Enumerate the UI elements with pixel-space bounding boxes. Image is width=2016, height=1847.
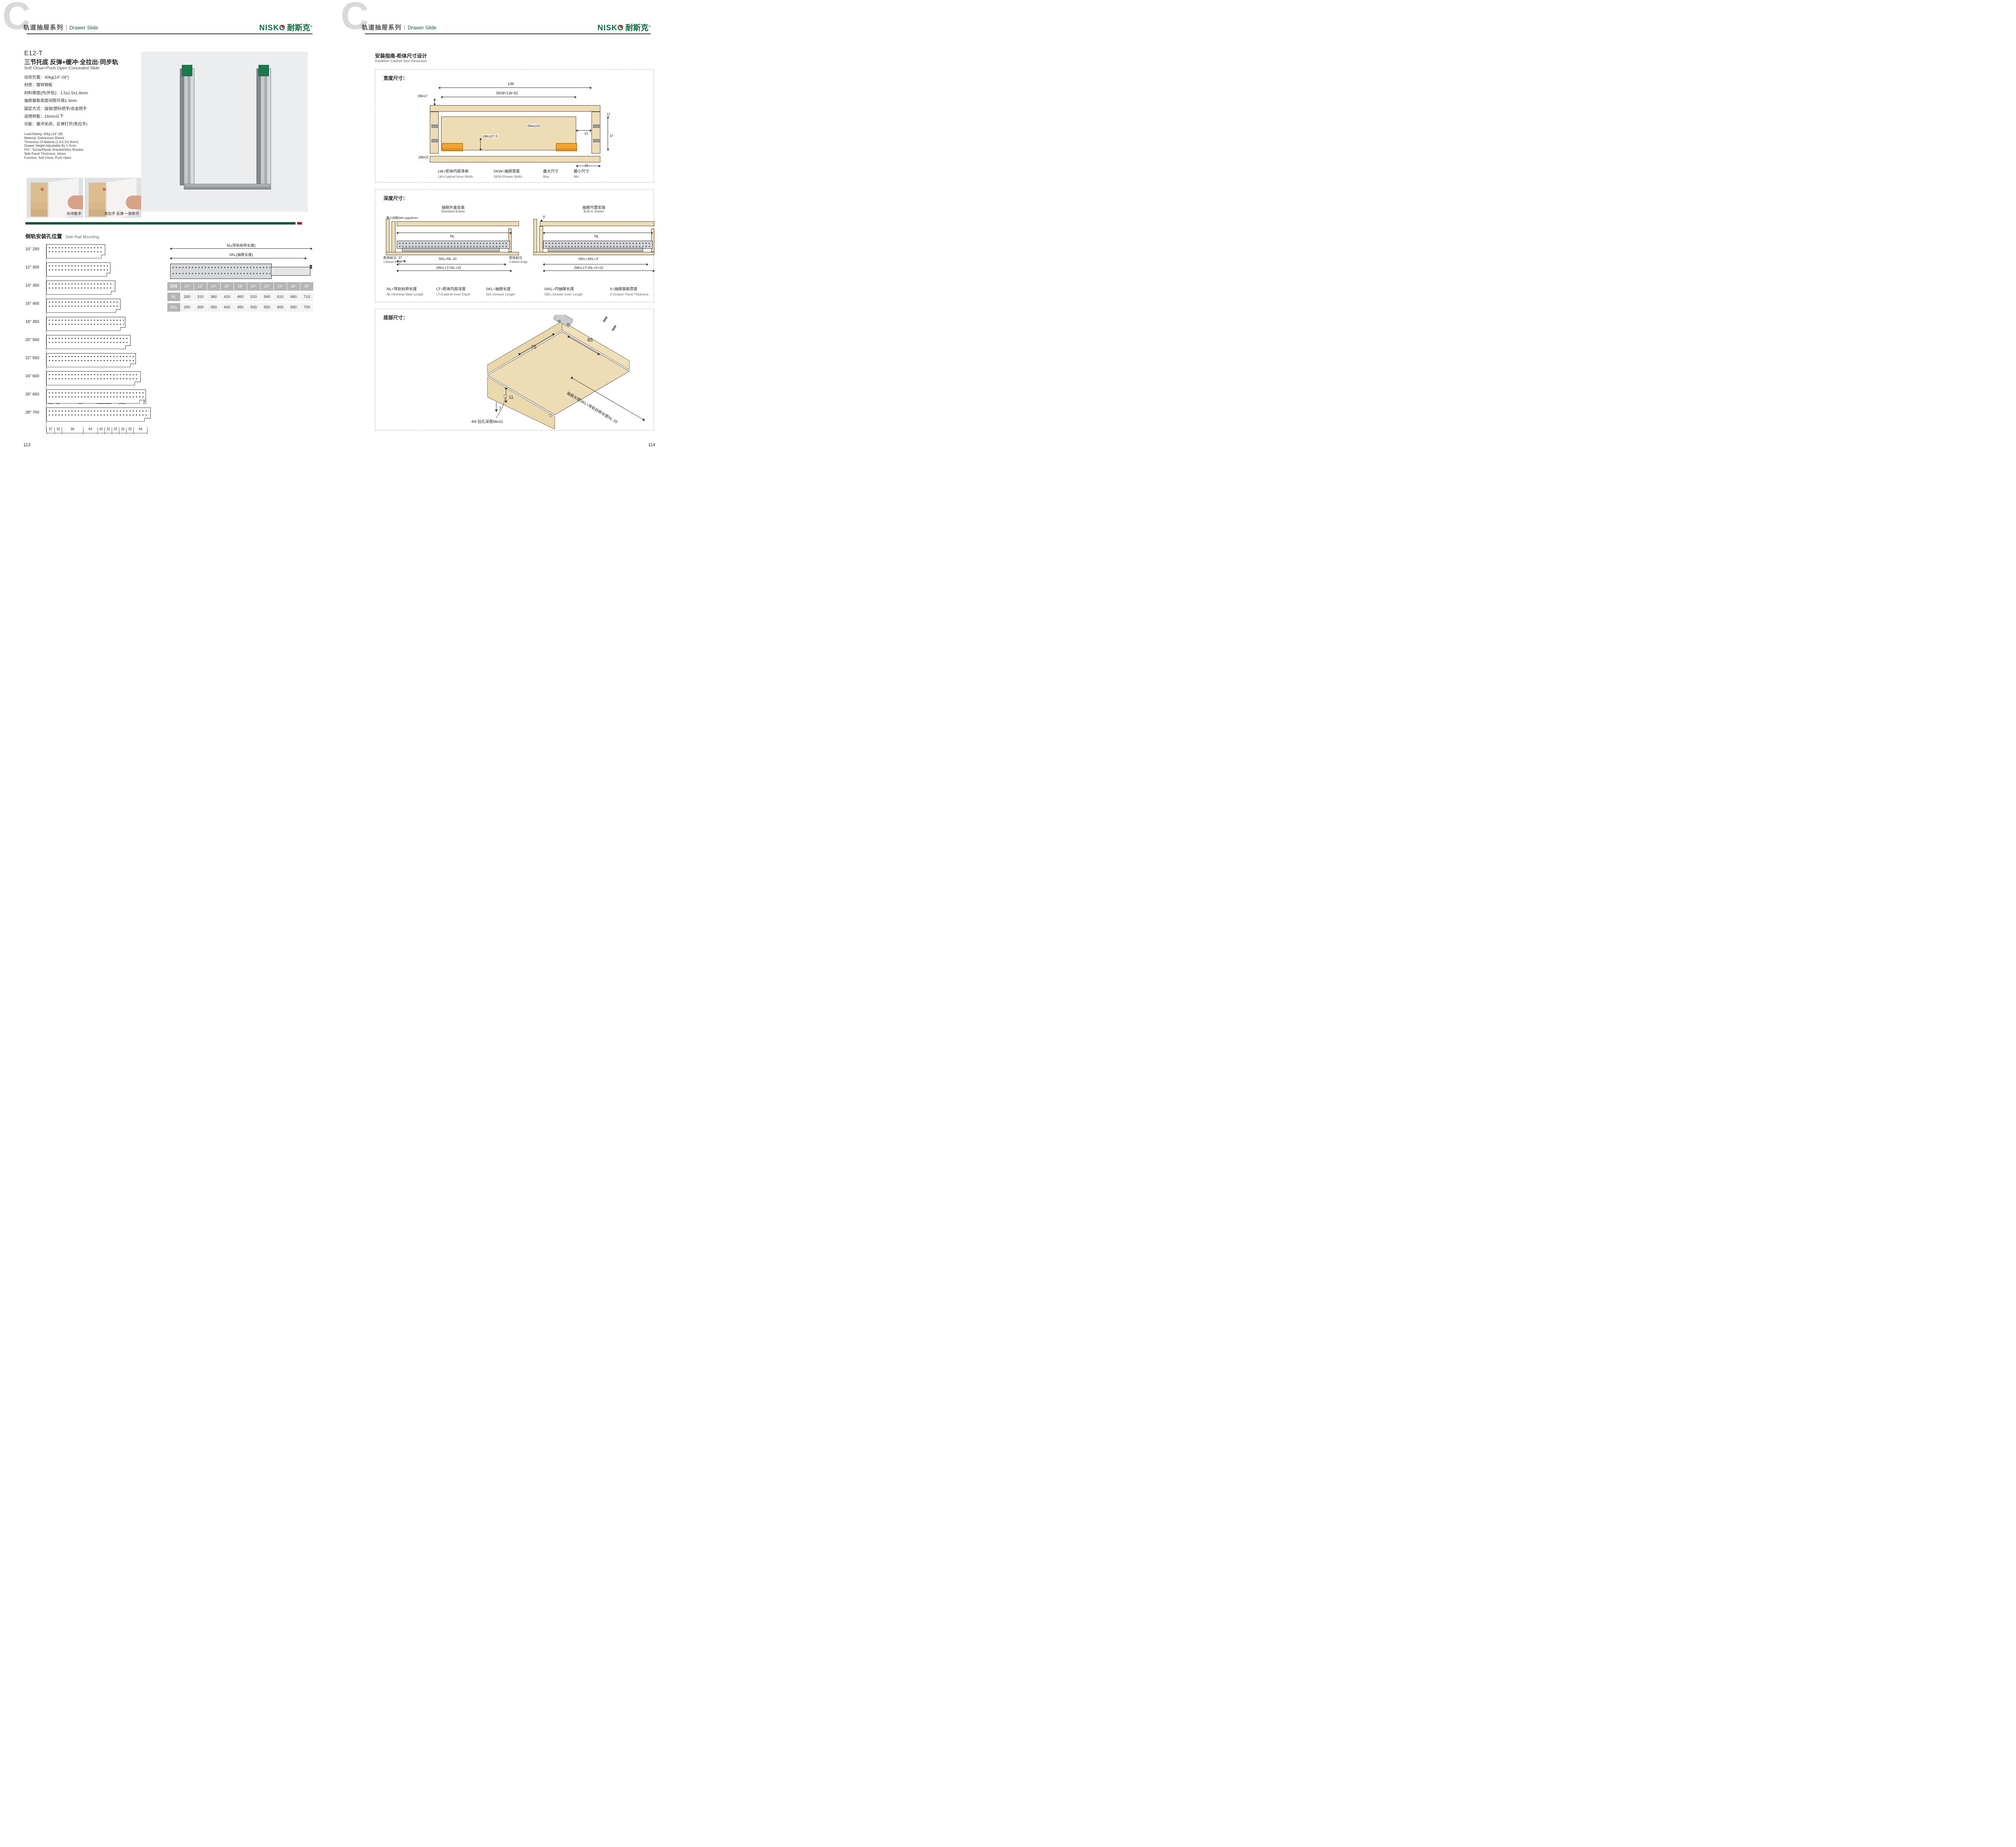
width-diagram: LW SKW=LW-42 (Min)7 (Max)16 (Min)27.5 [387, 82, 643, 169]
nl-arrow [397, 233, 512, 233]
hand-image [126, 196, 141, 209]
table-value-cell: 610 [274, 293, 287, 301]
legend-zh: ISKL=内抽屉长度 [544, 286, 583, 291]
screw-icon [603, 316, 616, 331]
rail-row: 28" 700 [25, 405, 314, 423]
cabinet-top-board [430, 105, 600, 112]
cabinet-side-panel [533, 219, 537, 254]
dim-11-label: 11 [509, 395, 513, 400]
hole-row [48, 377, 139, 380]
slide-rail-image [543, 241, 653, 249]
hole-row [48, 323, 124, 326]
table-value-cell: 510 [247, 293, 260, 301]
table-header-cell: 24" [274, 282, 287, 291]
rail-lower-profile [46, 364, 131, 367]
cabinet-top-board [397, 221, 519, 226]
series-title-en: Drawer Slide [408, 25, 437, 31]
slide-hardware-right [556, 143, 577, 151]
hand-image [68, 196, 83, 209]
table-value-cell: 500 [247, 303, 260, 312]
close-arrows-icon: « [40, 185, 43, 193]
product-title-en: Soft Close+Push Open Concealed Slide [24, 66, 100, 71]
rail-size-label: 22" 550 [25, 356, 45, 360]
spec-line-zh: 固定方式：插销/塑料把手/合金把手 [24, 105, 88, 113]
legend-zh: X=抽屉面板厚度 [610, 286, 649, 291]
series-title-zh: 轨道抽屉系列 [362, 24, 402, 31]
bottom-box-title: 底部尺寸： [383, 314, 408, 321]
bottom-iso-diagram: 75 85 11 7 Φ6 钻孔深度Min11 抽屉长度S [471, 315, 646, 429]
hole-row [172, 266, 270, 269]
cabinet-edge-en: Cabinet Edge [509, 260, 527, 264]
drill-hole [549, 414, 552, 417]
rail-drawing [46, 299, 121, 310]
rail-lower-profile [46, 309, 116, 313]
table-header-cell: 18" [234, 282, 247, 291]
dim-37-arrow [608, 116, 608, 150]
dim-75-label: 75 [531, 344, 537, 350]
bottom-dimension-box: 底部尺寸： [375, 309, 654, 431]
drill-note: Φ6 钻孔深度Min11 [471, 419, 503, 424]
skl-formula-label: SKL=NL-10 [438, 257, 457, 261]
slide-right-image [256, 69, 271, 185]
dim-37-arrow [397, 261, 406, 261]
rail-drawing [46, 371, 141, 382]
spec-line-en: Side Panel Thickness: 16mm [24, 152, 83, 156]
depth-dimension-box: 深度尺寸： 抽屉外盖安装 Standard drawer 最小间隙(Min ga… [375, 189, 654, 302]
size-table: 规格10"12"14"16"18"20"22"24"26"28"NL260310… [167, 282, 317, 314]
hole-row [48, 341, 129, 344]
table-value-cell: 650 [287, 303, 300, 312]
drawer-front-panel [392, 221, 396, 254]
spec-line-zh: 动态负载：40kg(14"-28") [24, 74, 88, 81]
rail-size-label: 28" 700 [25, 410, 45, 415]
builtin-caption-en: Built-in drawer [533, 210, 654, 213]
brand-logo: NISKO耐斯克® [598, 22, 651, 33]
hole-row [48, 355, 134, 358]
rail-drawing [46, 262, 110, 273]
section-divider-red [297, 222, 302, 225]
page-number-left: 113 [23, 443, 31, 447]
lt-formula-label: (Min) LT=NL+X+10 [574, 266, 604, 270]
lt-arrow [397, 270, 512, 271]
install-guide-title-en: Installtion Cabinet Size Dimension [375, 59, 427, 63]
width-dimension-box: 宽度尺寸： LW SKW=LW-42 (Min)7 (Max)16 [375, 69, 654, 183]
rail-size-label: 20" 500 [25, 338, 45, 342]
skl-note-label: 抽屉长度SKL=导轨标称长度NL-10 [566, 391, 619, 424]
table-row-label: NL [167, 293, 180, 301]
slide-lower-profile [402, 248, 500, 252]
cabinet-bottom-board [386, 252, 519, 255]
open-arrows-icon: » [102, 185, 105, 193]
hole-row [48, 287, 114, 289]
hole-row [48, 301, 119, 304]
legend-item: X=抽屉面板厚度X=Drawer Panel Thickness [610, 286, 649, 296]
spec-line-en: Material: Galvanized Sheed [24, 136, 83, 140]
sync-bar-image [184, 184, 271, 189]
bottom-dim-cell: 32 [104, 427, 112, 434]
legend-zh: SKW=抽屉宽度 [494, 168, 522, 174]
table-header-row: 规格10"12"14"16"18"20"22"24"26"28" [167, 282, 317, 291]
min275-label: (Min)27.5 [483, 134, 498, 138]
table-value-cell: 410 [221, 293, 233, 301]
header-divider [66, 25, 67, 30]
header-divider [404, 25, 405, 30]
table-header-cell: 26" [287, 282, 300, 291]
rail-drawing [46, 389, 146, 400]
catalog-spread: C 轨道抽屉系列Drawer Slide NISKO耐斯克® E12-T 三节托… [0, 0, 676, 462]
bottom-dim-cell: 32 [126, 427, 133, 434]
cabinet-front-edge [386, 219, 389, 254]
rail-drawing [46, 317, 125, 328]
hole-row [48, 395, 144, 398]
dim-37-label: 37 [398, 256, 402, 260]
lw-label: LW [508, 82, 514, 86]
dim-line [104, 431, 112, 433]
rail-size-label: 24" 600 [25, 374, 45, 379]
table-header-cell: 14" [207, 282, 220, 291]
product-specs-en: Load Rating: 40kg (14"-28)Material: Galv… [24, 132, 83, 160]
slide-lower-profile [548, 248, 643, 252]
table-value-cell: 560 [260, 293, 273, 301]
bottom-dim-cell: 32 [112, 427, 119, 434]
spec-line-en: Load Rating: 40kg (14"-28) [24, 132, 83, 136]
legend-en: Max [543, 175, 558, 179]
table-header-cell: 规格 [167, 282, 180, 291]
lt-arrow [543, 270, 654, 271]
hole-row [48, 246, 104, 249]
legend-zh: 最小尺寸 [574, 168, 589, 174]
hole-row [48, 337, 129, 340]
lw-arrow [439, 87, 591, 88]
max16-arrow [576, 130, 591, 131]
min275-arrow [480, 138, 481, 150]
rail-lower-profile [46, 418, 145, 422]
hole-row [398, 242, 508, 245]
rail-size-label: 12" 300 [25, 265, 45, 270]
series-title-zh: 轨道抽屉系列 [23, 24, 63, 31]
legend-zh: SKL=抽屉长度 [486, 286, 515, 291]
legend-en: LT=Cabinet Inner Depth [436, 293, 471, 296]
slide-extension-image [271, 267, 310, 276]
skl-arrow [397, 264, 506, 264]
spec-line-en: Function: Soft Close, Push Open [24, 156, 83, 160]
table-header-cell: 20" [247, 282, 260, 291]
nl-arrow [170, 248, 312, 249]
skl-dim-label: SKL(抽屉长度) [169, 252, 313, 257]
legend-en: X=Drawer Panel Thickness [610, 293, 649, 296]
table-value-cell: 660 [287, 293, 300, 301]
table-row: NL260310360410460510560610660710 [167, 293, 317, 301]
slide-clip-icon [182, 65, 192, 76]
dim-21-arrow [576, 166, 600, 166]
table-value-cell: 550 [260, 303, 273, 312]
spec-line-zh: 功能：缓冲关闭，反弹打开(免拉手) [24, 121, 88, 128]
spec-line-zh: 材料厚度(内/外轨)：1.5x1.5x1.8mm [24, 89, 88, 97]
brand-name-zh: 耐斯克 [287, 24, 310, 32]
registered-mark: ® [310, 25, 312, 29]
hole-row [48, 264, 109, 267]
standard-drawer-diagram: 抽屉外盖安装 Standard drawer 最小间隙(Min gap)4mm … [386, 204, 521, 276]
skl-arrow [170, 258, 306, 258]
rail-row: 20" 500 [25, 333, 314, 351]
dim-line [126, 431, 134, 433]
hole-row [545, 242, 651, 245]
slide-hardware-left [442, 143, 463, 151]
hole-row [48, 410, 149, 412]
photo-soft-close: « 关闭缓冲 [27, 178, 83, 218]
cabinet-right-panel [591, 112, 600, 154]
cabinet-edge-label: 柜体前沿 Cabinet Edge [509, 256, 527, 264]
bottom-dimension-row: 37329664323232323264 [46, 427, 148, 434]
legend-item: NL=导轨标称长度NL=Nominal Slide Length [387, 286, 423, 296]
rail-drawing [46, 244, 105, 255]
legend-item: SKW=抽屉宽度SKW=Drawer Width [494, 168, 522, 179]
legend-zh: LW=柜体内部净高 [438, 168, 473, 174]
hole-row [48, 414, 149, 416]
max16-label: (Max)16 [527, 124, 540, 128]
table-row-label: SKL [167, 303, 180, 312]
rail-size-label: 26" 650 [25, 392, 45, 397]
hole-row [48, 319, 124, 322]
builtin-caption-zh: 抽屉内置安装 [533, 204, 654, 210]
spec-line-en: Drawer Height Adjustable By 1-3mm [24, 144, 83, 148]
rail-size-label: 16" 400 [25, 302, 45, 306]
cabinet-top-board [540, 221, 654, 226]
rail-row: 24" 600 [25, 369, 314, 387]
nl-label: NL [594, 234, 600, 238]
min7-label: (Min)7 [417, 94, 428, 98]
hole-row [398, 245, 508, 248]
cabinet-edge-zh: 柜体前沿 [509, 256, 527, 260]
product-model: E12-T [24, 50, 43, 57]
rail-lower-profile [46, 345, 126, 349]
rail-drawing [46, 281, 115, 291]
dim-12-label: 12 [606, 112, 610, 116]
skl-note-arrow [573, 379, 645, 420]
legend-zh: 最大尺寸 [543, 168, 558, 174]
brand-name-zh: 耐斯克 [625, 24, 648, 32]
nl-dim-label: NL(导轨标称长度) [169, 243, 313, 248]
table-value-cell: 600 [274, 303, 287, 312]
min3-label: (Min)3 [418, 155, 429, 159]
slide-clip-icon [258, 65, 269, 76]
hole-row [48, 359, 134, 362]
hole-row [545, 245, 651, 248]
page-right: C 轨道抽屉系列Drawer Slide NISKO耐斯克® 安装指南-柜体尺寸… [338, 0, 676, 462]
rail-lower-profile [46, 273, 107, 277]
iskl-formula-label: ISKL=SKL+X [578, 257, 599, 261]
dim-10-label: 10 [584, 132, 588, 135]
bottom-dim-cell: 64 [83, 427, 97, 434]
iskl-arrow [543, 264, 648, 264]
slide-rail-image [397, 241, 510, 249]
dim-37-label: 37 [609, 134, 614, 138]
width-box-title: 宽度尺寸： [383, 75, 408, 81]
iso-drawing: 75 85 11 7 Φ6 钻孔深度Min11 抽屉长度S [471, 315, 646, 429]
photo-caption: 关闭缓冲 [67, 211, 81, 216]
series-title-en: Drawer Slide [69, 25, 98, 31]
table-value-cell: 260 [181, 293, 194, 301]
table-header-cell: 10" [181, 282, 194, 291]
legend-item: SKL=抽屉长度SKL=Drawer Length [486, 286, 515, 296]
registered-mark: ® [648, 25, 651, 29]
nl-label: NL [450, 234, 455, 238]
logo-red-dot-icon [620, 25, 623, 28]
nl-skl-diagram: NL(导轨标称长度) SKL(抽屉长度) [169, 243, 313, 281]
dim-85-label: 85 [587, 337, 593, 343]
dim-line [97, 431, 105, 433]
table-value-cell: 710 [300, 293, 313, 301]
legend-en: NL=Nominal Slide Length [387, 293, 423, 296]
rail-drawing [46, 353, 136, 364]
hole-row [172, 272, 270, 275]
hole-row [48, 391, 144, 394]
skw-arrow [441, 97, 576, 97]
product-title-zh: 三节托底 反弹+缓冲·全拉出·同步轨 [24, 58, 118, 66]
min-gap-label: 最小间隙(Min gap)4mm [386, 216, 418, 220]
photo-caption: 免拉手 反弹 一按即开 [104, 211, 139, 216]
table-row: SKL250300350400450500550600650700 [167, 303, 317, 312]
rail-drawing [46, 408, 151, 418]
hole-row [48, 283, 114, 285]
header-rule [365, 33, 651, 34]
slide-body-image [170, 264, 272, 279]
legend-zh: LT=柜体内部深度 [436, 286, 471, 291]
table-value-cell: 450 [234, 303, 247, 312]
rail-lower-profile [46, 291, 111, 295]
dim-line [83, 431, 98, 433]
rail-drawing [46, 335, 131, 346]
slide-hook-image [310, 265, 312, 269]
nl-arrow [543, 233, 653, 233]
table-value-cell: 310 [194, 293, 207, 301]
drawer-front-panel [539, 226, 543, 254]
rail-size-label: 18" 450 [25, 320, 45, 324]
page-number-right: 114 [648, 443, 655, 447]
slide-left-image [180, 69, 194, 185]
dim-line [46, 431, 55, 433]
legend-en: LW=Cabinet Inner Width [438, 175, 473, 179]
drill-hole [504, 395, 506, 397]
logo-red-dot-icon [281, 25, 284, 28]
legend-item: LT=柜体内部深度LT=Cabinet Inner Depth [436, 286, 471, 296]
section-divider-green [25, 222, 296, 225]
bottom-dim-cell: 32 [97, 427, 104, 434]
cabinet-bottom-board [430, 156, 600, 162]
bottom-dim-cell: 96 [62, 427, 83, 434]
legend-zh: NL=导轨标称长度 [387, 286, 423, 291]
standard-caption-en: Standard drawer [386, 210, 521, 213]
table-value-cell: 700 [300, 303, 313, 312]
hole-row [48, 305, 119, 308]
cabinet-left-panel [430, 112, 439, 154]
table-value-cell: 350 [207, 303, 220, 312]
header-rule [27, 33, 312, 34]
page-left: C 轨道抽屉系列Drawer Slide NISKO耐斯克® E12-T 三节托… [0, 0, 338, 462]
bottom-dim-cell: 37 [46, 427, 54, 434]
legend-en: SKW=Drawer Width [494, 175, 522, 179]
lt-formula-label: (Min) LT=NL+10 [436, 266, 461, 270]
rail-size-label: 10" 250 [25, 247, 45, 252]
table-value-cell: 360 [207, 293, 220, 301]
legend-item: LW=柜体内部净高LW=Cabinet Inner Width [438, 168, 473, 179]
rail-size-label: 14" 350 [25, 283, 45, 288]
screw-icon [593, 125, 600, 128]
legend-item: 最大尺寸Max [543, 168, 558, 179]
skw-label: SKW=LW-42 [496, 91, 518, 96]
product-specs-zh: 动态负载：40kg(14"-28")材质：镀锌钢板材料厚度(内/外轨)：1.5x… [24, 74, 88, 129]
dim-line [133, 431, 148, 433]
page-header: 轨道抽屉系列Drawer Slide [23, 23, 98, 31]
standard-caption-zh: 抽屉外盖安装 [386, 204, 521, 210]
product-photo [141, 52, 308, 212]
rail-row: 22" 550 [25, 351, 314, 369]
screw-icon [431, 125, 438, 128]
spec-line-zh: 适用侧板：16mm以下 [24, 113, 88, 121]
dim-line [54, 431, 62, 433]
side-rail-title-zh: 侧轨安装孔位置 [25, 233, 62, 239]
cabinet-bottom-board [533, 252, 654, 255]
dim-line [62, 431, 83, 433]
x-label: X [542, 215, 546, 219]
legend-en: SKL=Drawer Length [486, 293, 515, 296]
bottom-dim-cell: 32 [54, 427, 62, 434]
rail-lower-profile [46, 255, 102, 258]
legend-en: Min [574, 175, 589, 179]
rail-lower-profile [46, 400, 140, 404]
hole-row [48, 268, 109, 271]
table-value-cell: 460 [234, 293, 247, 301]
builtin-drawer-diagram: 抽屉内置安装 Built-in drawer X NL 柜体前沿 Ca [533, 204, 654, 276]
table-header-cell: 22" [260, 282, 273, 291]
dim-line [119, 431, 127, 433]
spec-line-en: FIX：Screw/Plastic Bracket/Alloy Bracket [24, 148, 83, 152]
screw-icon [431, 139, 438, 142]
table-header-cell: 16" [221, 282, 233, 291]
rail-lower-profile [46, 382, 135, 385]
rail-lower-profile [46, 327, 121, 331]
hole-row [48, 250, 104, 253]
bottom-dim-cell: 64 [133, 427, 148, 434]
min7-arrow [434, 99, 435, 105]
depth-box-title: 深度尺寸： [383, 195, 408, 202]
spec-line-zh: 材质：镀锌钢板 [24, 81, 88, 89]
rail-row: 26" 650 [25, 387, 314, 405]
spec-line-en: Thickness Of Materia (1.5/1.5/1.8mm) [24, 140, 83, 144]
spec-line-zh: 抽屉面板高度间隙可调1-3mm [24, 97, 88, 105]
legend-en: ISKL=Drawer Inner Length [544, 293, 583, 296]
dim-line [112, 431, 119, 433]
bottom-dim-cell: 32 [119, 427, 126, 434]
side-rail-title-en: Side Rail Mounting [65, 235, 99, 239]
page-header: 轨道抽屉系列Drawer Slide [362, 23, 437, 31]
table-value-cell: 400 [221, 303, 233, 312]
table-header-cell: 28" [300, 282, 313, 291]
legend-item: 最小尺寸Min [574, 168, 589, 179]
brand-logo: NISKO耐斯克® [259, 22, 312, 33]
rail-row: 18" 450 [25, 314, 314, 333]
table-value-cell: 250 [181, 303, 194, 312]
hole-row [48, 373, 139, 376]
photo-push-open: » 免拉手 反弹 一按即开 [85, 178, 141, 218]
table-value-cell: 300 [194, 303, 207, 312]
legend-item: ISKL=内抽屉长度ISKL=Drawer Inner Length [544, 286, 583, 296]
table-header-cell: 12" [194, 282, 207, 291]
install-guide-title-zh: 安装指南-柜体尺寸设计 [375, 52, 427, 59]
screw-icon [593, 139, 600, 142]
side-rail-title: 侧轨安装孔位置Side Rail Mounting [25, 232, 99, 240]
